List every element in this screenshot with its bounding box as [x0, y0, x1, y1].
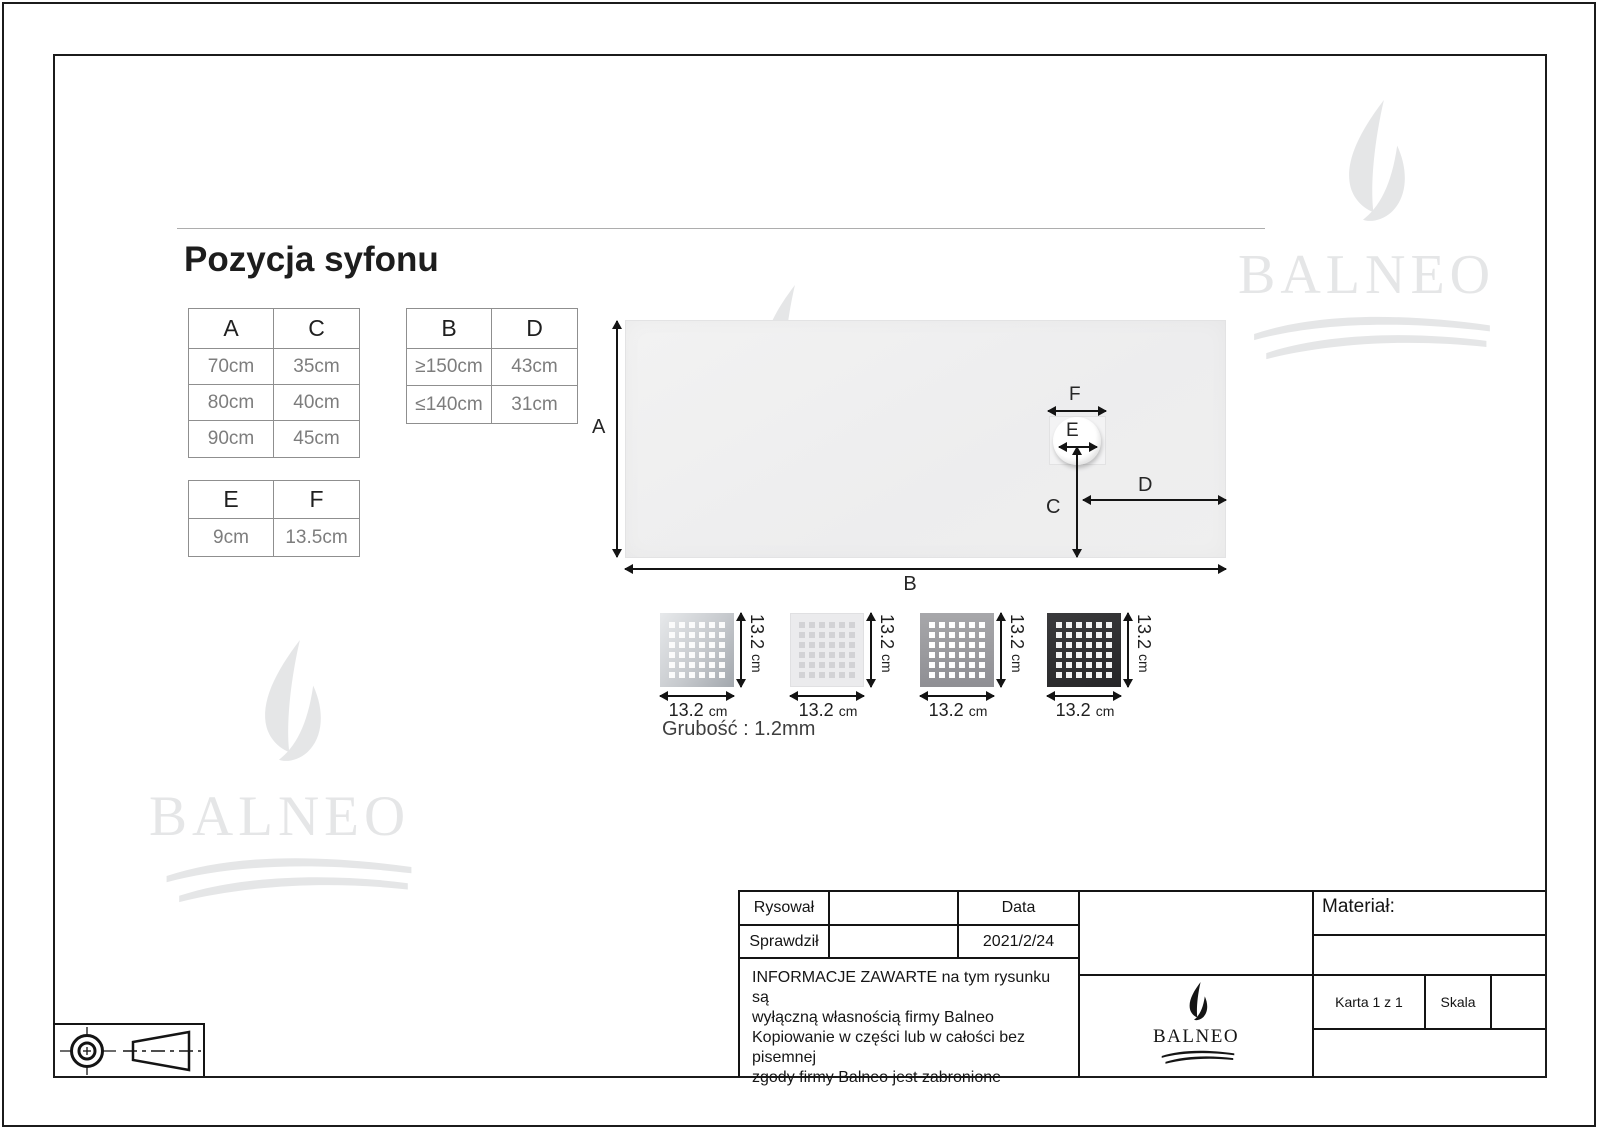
grate-dim-arrow-vertical [1000, 613, 1002, 687]
grate-option-black: 13.2cm 13.2cm [1047, 613, 1167, 743]
table-cell: 70cm [189, 349, 274, 385]
dim-arrow-f [1048, 410, 1106, 412]
grate-dim-arrow-vertical [1127, 613, 1129, 687]
table-header: B [407, 309, 492, 349]
grate-option-gray: 13.2cm 13.2cm [920, 613, 1040, 743]
table-cell: ≤140cm [407, 386, 492, 423]
table-position-ef: E F 9cm 13.5cm [188, 480, 360, 557]
grate-dim-label-vertical: 13.2cm [1006, 614, 1027, 718]
table-position-ac: A C 70cm 35cm 80cm 40cm 90cm 45cm [188, 308, 360, 458]
dim-label-c: C [1046, 496, 1060, 519]
titleblock-line [1312, 1028, 1545, 1030]
table-header: C [274, 309, 359, 349]
table-cell: 40cm [274, 385, 359, 421]
table-cell: 80cm [189, 385, 274, 421]
grate-dim-label-vertical: 13.2cm [746, 614, 767, 718]
sheet-label: Karta 1 z 1 [1314, 976, 1424, 1028]
cone-projection-icon [123, 1028, 201, 1074]
scale-label: Skala [1426, 976, 1490, 1028]
header-separator [177, 228, 1265, 229]
symbol-box-line [203, 1023, 205, 1076]
dim-label-a: A [592, 416, 605, 439]
table-cell: ≥150cm [407, 349, 492, 386]
grate-white [790, 613, 864, 687]
dim-arrow-e [1059, 446, 1097, 448]
grate-hole-pattern [929, 622, 985, 678]
grate-hole-pattern [799, 622, 855, 678]
dim-label-d: D [1138, 474, 1152, 497]
dim-label-f: F [1069, 384, 1081, 406]
grate-black [1047, 613, 1121, 687]
grate-dim-arrow-horizontal [920, 695, 994, 697]
titleblock-line [738, 957, 1078, 959]
table-header: D [492, 309, 577, 349]
material-label: Materiał: [1322, 896, 1395, 918]
symbol-box-line [53, 1023, 205, 1025]
table-cell: 31cm [492, 386, 577, 423]
table-cell: 9cm [189, 519, 274, 556]
titleblock-line [1490, 974, 1492, 1030]
first-angle-projection-icon [60, 1027, 116, 1075]
date-label: Data [959, 892, 1078, 924]
grate-dim-arrow-horizontal [790, 695, 864, 697]
thickness-note: Grubość : 1.2mm [662, 718, 815, 741]
grate-dim-label-vertical: 13.2cm [1133, 614, 1154, 718]
titleblock-line [828, 890, 830, 959]
grate-hole-pattern [1056, 622, 1112, 678]
dim-arrow-a [616, 321, 618, 557]
grate-dim-arrow-horizontal [660, 695, 734, 697]
dim-arrow-c [1076, 447, 1078, 557]
grate-gray [920, 613, 994, 687]
table-cell: 45cm [274, 421, 359, 457]
table-cell: 13.5cm [274, 519, 359, 556]
grate-dim-label-vertical: 13.2cm [876, 614, 897, 718]
drawn-by-label: Rysował [740, 892, 828, 924]
dim-arrow-b [625, 568, 1226, 570]
copyright-notice: INFORMACJE ZAWARTE na tym rysunku są wył… [752, 968, 1067, 1088]
grate-hole-pattern [669, 622, 725, 678]
titleblock-line [1078, 890, 1080, 1077]
technical-drawing-sheet: BALNEO BALNEO BALNEO Pozycja syfonu [0, 0, 1600, 1131]
grate-dim-arrow-vertical [870, 613, 872, 687]
page-title: Pozycja syfonu [184, 240, 439, 280]
table-position-bd: B D ≥150cm 43cm ≤140cm 31cm [406, 308, 578, 424]
table-header: A [189, 309, 274, 349]
checked-by-label: Sprawdził [740, 926, 828, 957]
table-header: F [274, 481, 359, 519]
shower-tray-outline [625, 320, 1226, 558]
grate-stainless-steel [660, 613, 734, 687]
table-cell: 90cm [189, 421, 274, 457]
grate-dim-label-horizontal: 13.2cm [916, 700, 1000, 721]
dim-label-b: B [880, 573, 940, 596]
dim-arrow-d [1083, 499, 1226, 501]
grate-dim-arrow-horizontal [1047, 695, 1121, 697]
dim-label-e: E [1066, 420, 1079, 442]
grate-dim-label-horizontal: 13.2cm [1043, 700, 1127, 721]
table-cell: 35cm [274, 349, 359, 385]
titleblock-line [1312, 934, 1545, 936]
date-value: 2021/2/24 [959, 926, 1078, 957]
titleblock-line [738, 890, 1545, 892]
table-header: E [189, 481, 274, 519]
table-cell: 43cm [492, 349, 577, 386]
grate-dim-arrow-vertical [740, 613, 742, 687]
